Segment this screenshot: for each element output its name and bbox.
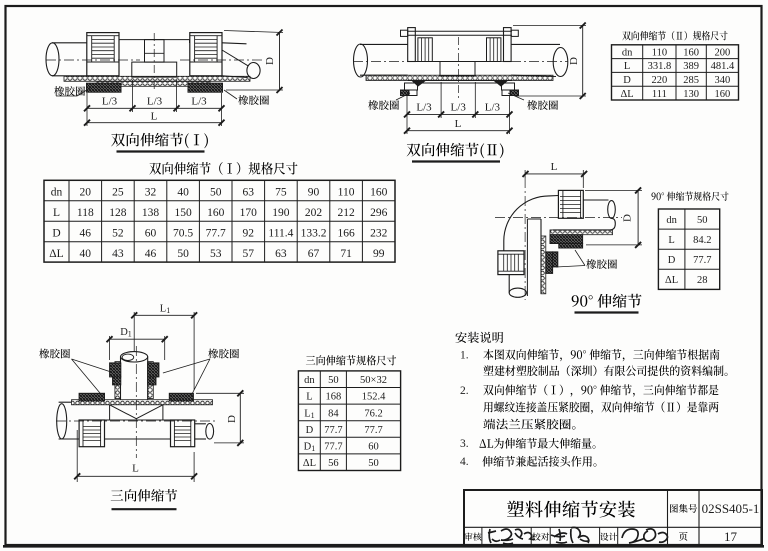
svg-text:17: 17 xyxy=(724,529,738,544)
svg-text:D1: D1 xyxy=(120,327,132,339)
svg-text:D: D xyxy=(264,57,276,65)
svg-text:L: L xyxy=(132,463,139,475)
svg-text:02SS405-1: 02SS405-1 xyxy=(702,501,760,516)
svg-text:L1: L1 xyxy=(160,304,170,316)
svg-text:L: L xyxy=(551,161,558,173)
svg-text:D: D xyxy=(226,415,238,423)
svg-text:D: D xyxy=(622,214,634,222)
svg-text:3.: 3. xyxy=(460,438,469,450)
svg-text:D: D xyxy=(568,57,580,65)
svg-text:L: L xyxy=(455,118,462,130)
svg-text:4.: 4. xyxy=(460,456,469,468)
svg-text:L/3L/3L/3: L/3L/3L/3 xyxy=(416,102,500,114)
svg-text:1.: 1. xyxy=(460,349,469,361)
svg-text:2.: 2. xyxy=(460,385,469,397)
svg-text:L: L xyxy=(151,111,158,123)
